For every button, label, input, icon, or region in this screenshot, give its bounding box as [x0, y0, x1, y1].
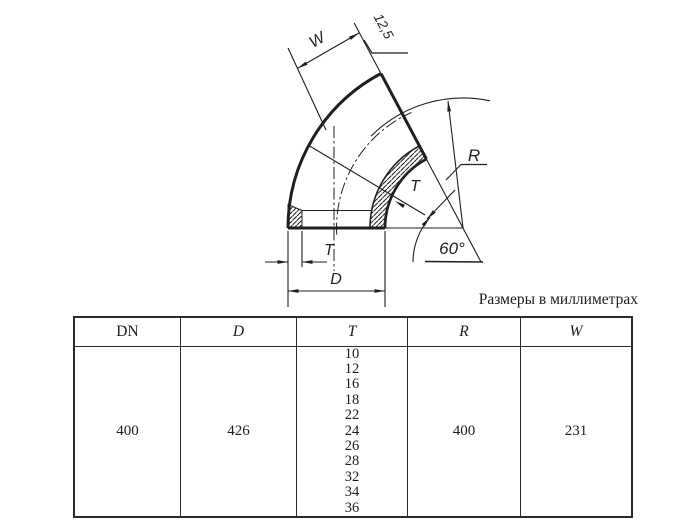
t-value: 26 [345, 439, 360, 454]
header-dn: DN [75, 318, 181, 346]
t-value: 10 [345, 347, 360, 362]
table-data-row: 400 426 10 12 16 18 22 24 26 28 32 34 36… [75, 347, 631, 516]
diameter-arrow-right [375, 289, 386, 293]
header-t: T [297, 318, 408, 346]
cell-d: 426 [181, 347, 297, 516]
t-value: 36 [345, 501, 360, 516]
radius-label: R [468, 146, 480, 165]
roughness-tick [364, 40, 408, 53]
wall-lower-label: T [324, 242, 335, 259]
roughness-label: 12,5 [371, 11, 397, 42]
angle-arrow [422, 217, 430, 226]
t-value: 16 [345, 377, 360, 392]
wall-upper-label: T [410, 178, 421, 195]
cell-dn: 400 [75, 347, 181, 516]
inclined-face-line [381, 74, 427, 160]
t-value: 28 [345, 454, 360, 469]
face-extension-upper [354, 23, 381, 74]
diameter-label: D [330, 271, 342, 288]
radius-leader [446, 165, 461, 181]
dimensions-table: DN D T R W 400 426 10 12 16 18 22 24 26 … [73, 316, 633, 518]
wall-lower-arrow-right [302, 260, 313, 264]
wall-lower-arrow-left [278, 260, 289, 264]
t-value: 34 [345, 485, 360, 500]
radius-reference-arc [371, 98, 490, 136]
diameter-arrow-left [288, 289, 299, 293]
cell-w: 231 [521, 347, 631, 516]
t-value: 32 [345, 470, 360, 485]
w-arrow-left [298, 62, 308, 69]
w-label: W [306, 28, 329, 51]
angle-label: 60° [439, 239, 465, 258]
cell-t: 10 12 16 18 22 24 26 28 32 34 36 [297, 347, 408, 516]
elbow-drawing: W 12,5 R T 60° T D [0, 0, 700, 315]
header-d: D [181, 318, 297, 346]
w-extension-line [288, 48, 326, 130]
header-r: R [408, 318, 521, 346]
header-w: W [521, 318, 631, 346]
angle-base-line [425, 262, 483, 263]
t-value: 18 [345, 393, 360, 408]
w-arrow-right [349, 33, 359, 40]
wall-thickness-list: 10 12 16 18 22 24 26 28 32 34 36 [345, 347, 360, 516]
t-value: 12 [345, 362, 360, 377]
cell-r: 400 [408, 347, 521, 516]
angle-arc [413, 217, 430, 262]
t-value: 22 [345, 408, 360, 423]
t-value: 24 [345, 424, 360, 439]
units-caption: Размеры в миллиметрах [479, 291, 638, 309]
table-header-row: DN D T R W [75, 318, 631, 347]
page: { "caption": "Размеры в миллиметрах", "d… [0, 0, 700, 525]
